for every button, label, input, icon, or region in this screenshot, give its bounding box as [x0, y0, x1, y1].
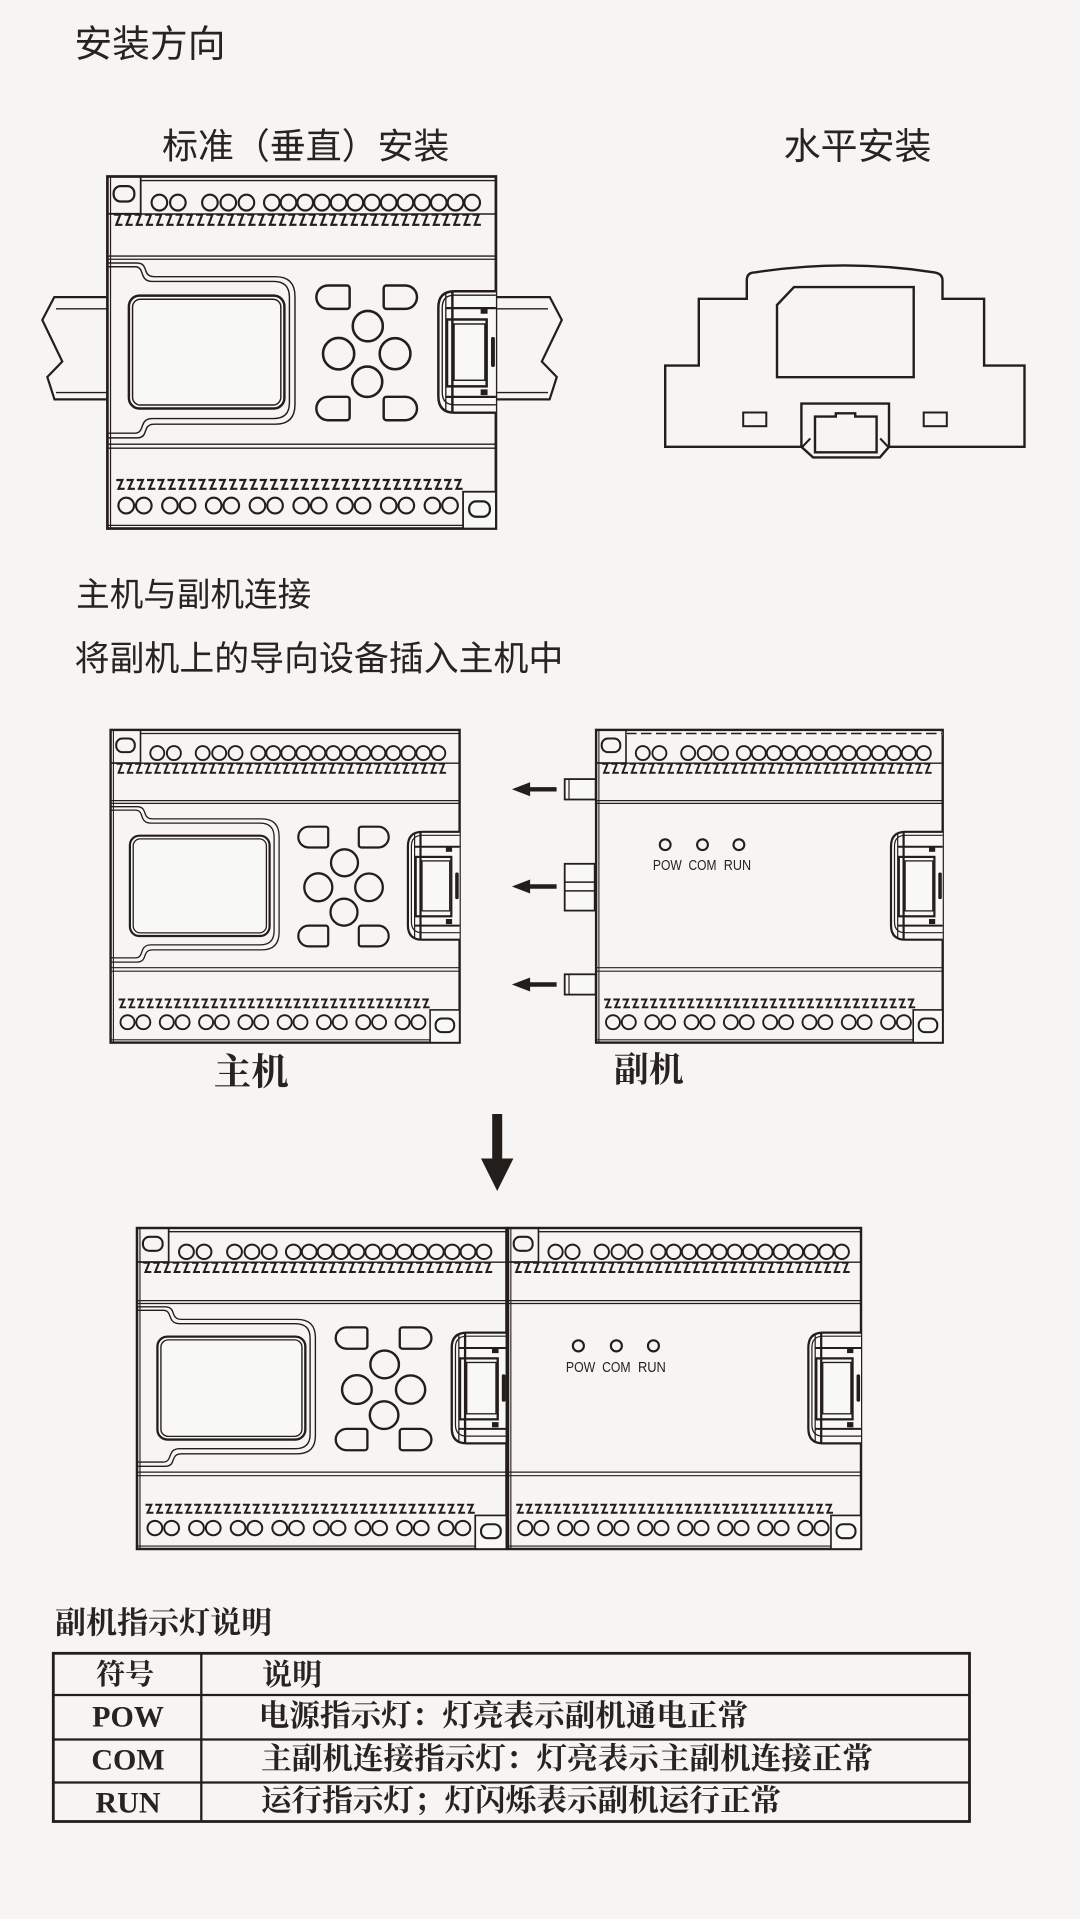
svg-text:POW: POW	[92, 1700, 164, 1733]
svg-text:RUN: RUN	[96, 1787, 161, 1820]
svg-text:COM: COM	[91, 1744, 164, 1777]
